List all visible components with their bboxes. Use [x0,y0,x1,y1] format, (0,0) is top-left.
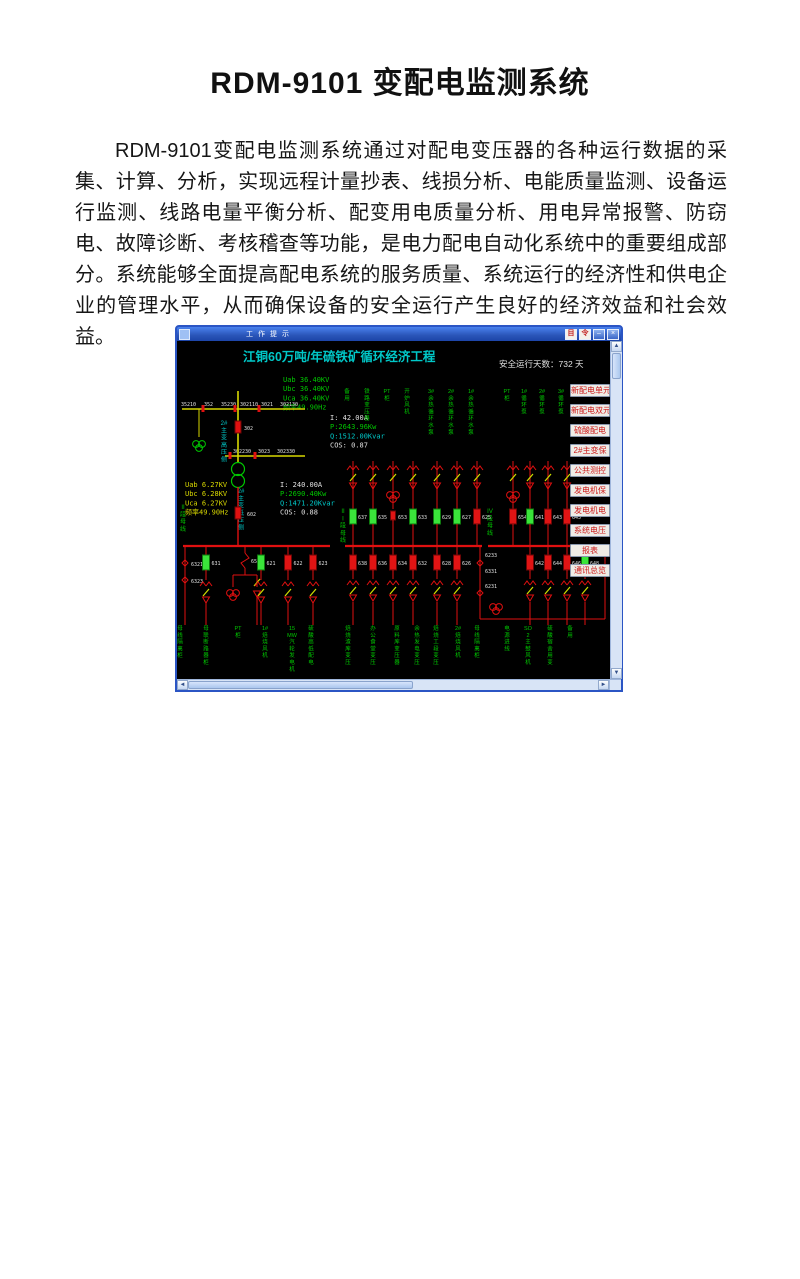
measurement-line: I: 240.00A [280,481,323,489]
truck-icon [203,597,210,603]
diagram-line [454,587,460,594]
measurement-line: Uab 36.40KV [283,376,330,384]
bus-breaker-mark[interactable] [254,452,257,459]
bottom-feeder-label: 15MW汽轮发电机 [287,626,298,673]
top-feeder-label: 1#循环泵 [521,389,528,415]
bottom-feeder-label: 焙烧工段变压 [433,624,439,666]
bus-breaker-mark[interactable] [234,405,237,412]
hmi-text: 602 [247,512,256,518]
switch-code: 628 [442,561,451,567]
breaker-642[interactable] [527,555,534,570]
menu-button-left[interactable]: 目 [565,329,577,340]
hmi-menu-button-9[interactable]: 报表 [570,544,610,557]
hmi-menu-button-2[interactable]: 新配电双元 [570,404,610,417]
bottom-feeder-label: 办公食堂变压 [370,624,376,666]
breaker-623[interactable] [310,555,317,570]
breaker-644[interactable] [545,555,552,570]
measurement-line: Ubc 6.28KV [185,490,228,498]
bus-III-label: III段母线 [340,509,346,544]
bottom-feeder-label: PT柜 [234,626,242,639]
disconnector-icon [524,581,536,585]
switch-code: 627 [462,515,471,521]
bus-IV-label: IV段母线 [487,509,493,537]
diagram-line [434,587,440,594]
window-titlebar[interactable]: 工作提示 目 令 – × [177,327,621,341]
bottom-feeder-label: 母线隔离柜 [177,625,183,659]
truck-icon [390,595,397,601]
breaker-633[interactable] [410,509,417,524]
measurement-line: P:2690.40Kw [280,490,327,498]
hmi-menu-button-10[interactable]: 通讯总览 [570,564,610,577]
breaker-654[interactable] [510,509,517,524]
top-feeder-label: 1#余热循环水泵 [468,389,475,436]
measurement-line: Q:1471.20Kvar [280,499,335,507]
diagram-line [350,587,356,594]
switch-code: 636 [378,561,387,567]
bottom-feeder-label: 焙烧渣库变压 [345,624,351,666]
measurement-line: Uab 6.27KV [185,481,228,489]
vertical-scrollbar[interactable]: ▲ ▼ [610,341,622,679]
bottom-feeder-label: 硫酸宿舍用变 [547,624,553,666]
truck-icon [564,595,571,601]
switch-code: 621 [267,561,276,567]
breaker-632[interactable] [410,555,417,570]
disconnector-icon [579,581,591,585]
truck-icon [434,595,441,601]
hmi-diagram: 江铜60万吨/年硫铁矿循环经济工程安全运行天数：732 天Uab 36.40KV… [177,341,610,679]
bottom-feeder-label: SO2主鼓风机 [524,626,533,666]
top-feeder-label: PT柜 [383,389,391,402]
truck-icon [258,597,265,603]
top-feeder-label: 3#余热循环水泵 [428,389,435,436]
switch-code: 653 [398,515,407,521]
measurement-line: 频率49.90Hz [185,508,229,517]
main-transformer-icon [232,475,245,488]
breaker-653[interactable] [391,511,396,520]
switch-code: 643 [553,515,562,521]
truck-icon [545,595,552,601]
hmi-text: 302 [244,426,253,432]
measurement-line: COS: 0.87 [330,442,368,450]
diagram-line [258,589,264,596]
disconnector-icon [561,581,573,585]
breaker-634[interactable] [390,555,397,570]
breaker-641[interactable] [527,509,534,524]
measurement-line: Ubc 36.40KV [283,385,330,393]
breaker-627[interactable] [454,509,461,524]
truck-icon [410,595,417,601]
top-feeder-label: PT柜 [503,389,511,402]
diagram-line [545,587,551,594]
switch-code: 633 [418,515,427,521]
hv-side-label: 2#主变高压侧 [221,421,228,464]
disconnector-icon [347,581,359,585]
switch-code: 6331 [485,569,497,575]
scrollbar-corner [609,679,621,690]
switch-code: 625 [482,515,491,521]
switch-code: 626 [462,561,471,567]
truck-icon [350,595,357,601]
switch-code: 352 [204,402,213,408]
switch-code: 654 [518,515,527,521]
switch-code: 35210 [181,402,196,408]
switch-code: 644 [553,561,562,567]
bus-breaker-mark[interactable] [229,452,232,459]
hmi-menu-button-6[interactable]: 发电机保 [570,484,610,497]
measurement-line: COS: 0.88 [280,509,318,517]
scroll-right-arrow-icon[interactable]: ► [598,680,609,690]
switch-code: 6233 [485,553,497,559]
switch-code: 642 [535,561,544,567]
bottom-feeder-label: 硫酸高低配电 [308,624,314,666]
switch-code: 638 [358,561,367,567]
breaker-635[interactable] [370,509,377,524]
top-feeder-label: 3#循环泵 [558,389,565,415]
switch-code: 629 [442,515,451,521]
hmi-menu-button-1[interactable]: 新配电单元 [570,384,610,397]
disconnector-icon [431,581,443,585]
disconnector-icon [407,581,419,585]
measurement-line: Uca 6.27KV [185,499,228,507]
switch-code: 3021 [261,402,273,408]
diagram-line [410,587,416,594]
diagram-line [310,589,316,596]
scroll-up-arrow-icon[interactable]: ▲ [611,341,622,352]
switch-code: 302130 [280,402,298,408]
page-title: RDM-9101 变配电监测系统 [0,58,800,102]
bottom-feeder-label: 母联断路器柜 [203,625,209,666]
minimize-button[interactable]: – [593,329,605,340]
bottom-feeder-label: 电源进线 [504,624,510,652]
truck-icon [285,597,292,603]
breaker-625[interactable] [474,509,481,524]
disconnector-icon [307,582,319,586]
breaker-602[interactable] [235,507,241,519]
scroll-left-arrow-icon[interactable]: ◄ [177,680,188,690]
switch-code: 302110 [240,402,258,408]
safe-running-days: 安全运行天数：732 天 [499,359,584,369]
breaker-629[interactable] [434,509,441,524]
truck-icon [310,597,317,603]
disconnector-icon [387,581,399,585]
top-feeder-label: 2#循环泵 [539,389,546,415]
breaker-638[interactable] [350,555,357,570]
measurement-line: Q:1512.00Kvar [330,432,385,440]
bottom-feeder-label: 原料库变压器 [394,625,400,666]
horizontal-scrollbar[interactable]: ◄ ► [177,679,609,690]
hmi-window: 工作提示 目 令 – × 江铜60万吨/年硫铁矿循环经济工程安全运行天数：732… [175,325,623,692]
breaker-622[interactable] [285,555,292,570]
switch-code: 302330 [277,449,295,455]
diagram-line [582,587,588,594]
diagram-line [527,587,533,594]
horizontal-scroll-thumb[interactable] [188,681,413,689]
truck-icon [370,595,377,601]
disconnector-icon [542,581,554,585]
hmi-menu-button-7[interactable]: 发电机电 [570,504,610,517]
vertical-scroll-thumb[interactable] [612,353,621,379]
hmi-menu-button-4[interactable]: 2#主变保 [570,444,610,457]
diagram-line [203,589,209,596]
breaker-637[interactable] [350,509,357,524]
hmi-menu-button-8[interactable]: 系统电压 [570,524,610,537]
bus-tie-switch-icon[interactable] [241,553,249,568]
breaker-636[interactable] [370,555,377,570]
menu-button-right[interactable]: 令 [579,329,591,340]
diagram-line [370,587,376,594]
bus-breaker-mark[interactable] [202,405,205,412]
switch-code: 6321 [191,562,203,568]
diagram-line [285,589,291,596]
hmi-menu-button-5[interactable]: 公共测控 [570,464,610,477]
window-title: 工作提示 [246,329,565,339]
breaker-643[interactable] [545,509,552,524]
disconnector-icon [282,582,294,586]
bus-breaker-mark[interactable] [258,405,261,412]
top-feeder-label: 开炉风机 [404,388,410,415]
top-feeder-label: 备用 [344,387,350,402]
truck-icon [582,595,589,601]
switch-code: 637 [358,515,367,521]
breaker-302[interactable] [235,421,241,433]
window-icon [179,329,190,340]
bottom-feeder-label: 2#焙烧风机 [455,626,462,659]
switch-code: 641 [535,515,544,521]
breaker-626[interactable] [454,555,461,570]
close-button[interactable]: × [607,329,619,340]
scroll-down-arrow-icon[interactable]: ▼ [611,668,622,679]
switch-code: 634 [398,561,407,567]
breaker-631[interactable] [203,555,210,570]
measurement-line: P:2643.96Kw [330,423,377,431]
switch-code: 6231 [485,584,497,590]
intro-paragraph: RDM-9101变配电监测系统通过对配电变压器的各种运行数据的采集、计算、分析，… [75,136,727,353]
bottom-feeder-label: 余热发电变压 [414,624,420,666]
top-feeder-label: 铁路变压器 [364,387,370,422]
switch-code: 622 [294,561,303,567]
breaker-628[interactable] [434,555,441,570]
truck-icon [454,595,461,601]
disconnector-icon [367,581,379,585]
disconnector-icon [451,581,463,585]
switch-code: 3023 [258,449,270,455]
switch-code: 632 [418,561,427,567]
switch-code: 631 [212,561,221,567]
hmi-menu-button-3[interactable]: 硫酸配电 [570,424,610,437]
switch-code: 623 [319,561,328,567]
truck-icon [527,595,534,601]
bottom-feeder-label: 母线隔离柜 [474,625,480,659]
bottom-feeder-label: 备用 [567,624,573,639]
hmi-screen-title: 江铜60万吨/年硫铁矿循环经济工程 [243,349,436,364]
hmi-canvas[interactable]: 江铜60万吨/年硫铁矿循环经济工程安全运行天数：732 天Uab 36.40KV… [177,341,610,679]
main-transformer-icon [232,463,245,476]
diagram-line [390,587,396,594]
diagram-line [564,587,570,594]
measurement-line: I: 42.00A [330,414,369,422]
switch-code: 302230 [233,449,251,455]
switch-code: 635 [378,515,387,521]
top-feeder-label: 2#余热循环水泵 [448,389,455,436]
bottom-feeder-label: 1#焙烧风机 [262,626,269,659]
breaker-621[interactable] [258,555,265,570]
